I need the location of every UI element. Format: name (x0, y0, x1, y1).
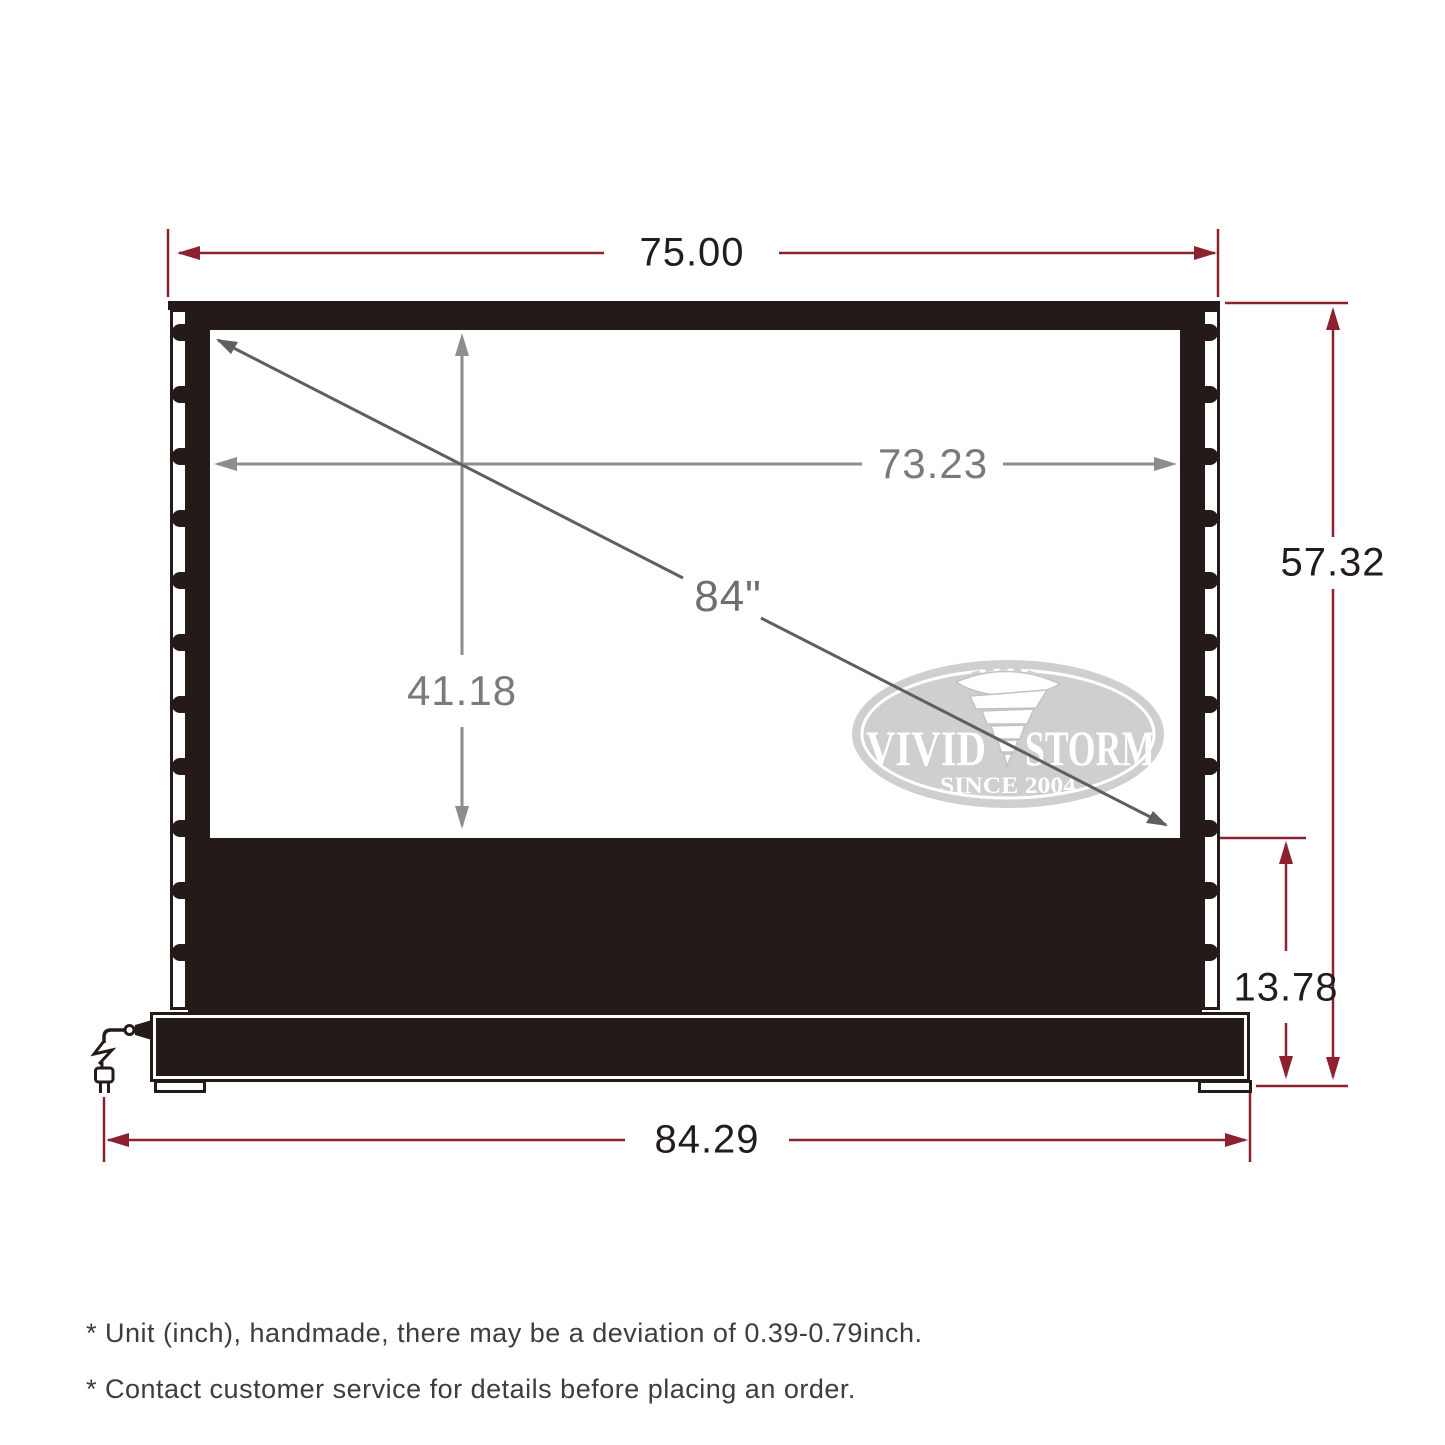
dim-diagonal-label: 84" (694, 572, 762, 622)
footnote-unit: * Unit (inch), handmade, there may be a … (86, 1318, 922, 1349)
red-dimension-lines (104, 229, 1348, 1162)
dimension-lines-layer (0, 0, 1445, 1445)
dim-total-height-label: 57.32 (1280, 541, 1385, 586)
dim-viewable-height-label: 41.18 (407, 667, 517, 715)
diagonal-line (218, 340, 1166, 825)
dim-viewable-width-label: 73.23 (878, 440, 988, 488)
dim-base-width-label: 84.29 (654, 1118, 759, 1163)
red-arrowheads (106, 246, 1340, 1147)
screen-dimension-diagram: VIVID STORM SINCE 2004 (0, 0, 1445, 1445)
dim-base-height-label: 13.78 (1233, 966, 1338, 1011)
power-cable-icon (94, 1020, 152, 1093)
footnote-contact: * Contact customer service for details b… (86, 1374, 856, 1405)
dim-top-width-label: 75.00 (639, 231, 744, 276)
